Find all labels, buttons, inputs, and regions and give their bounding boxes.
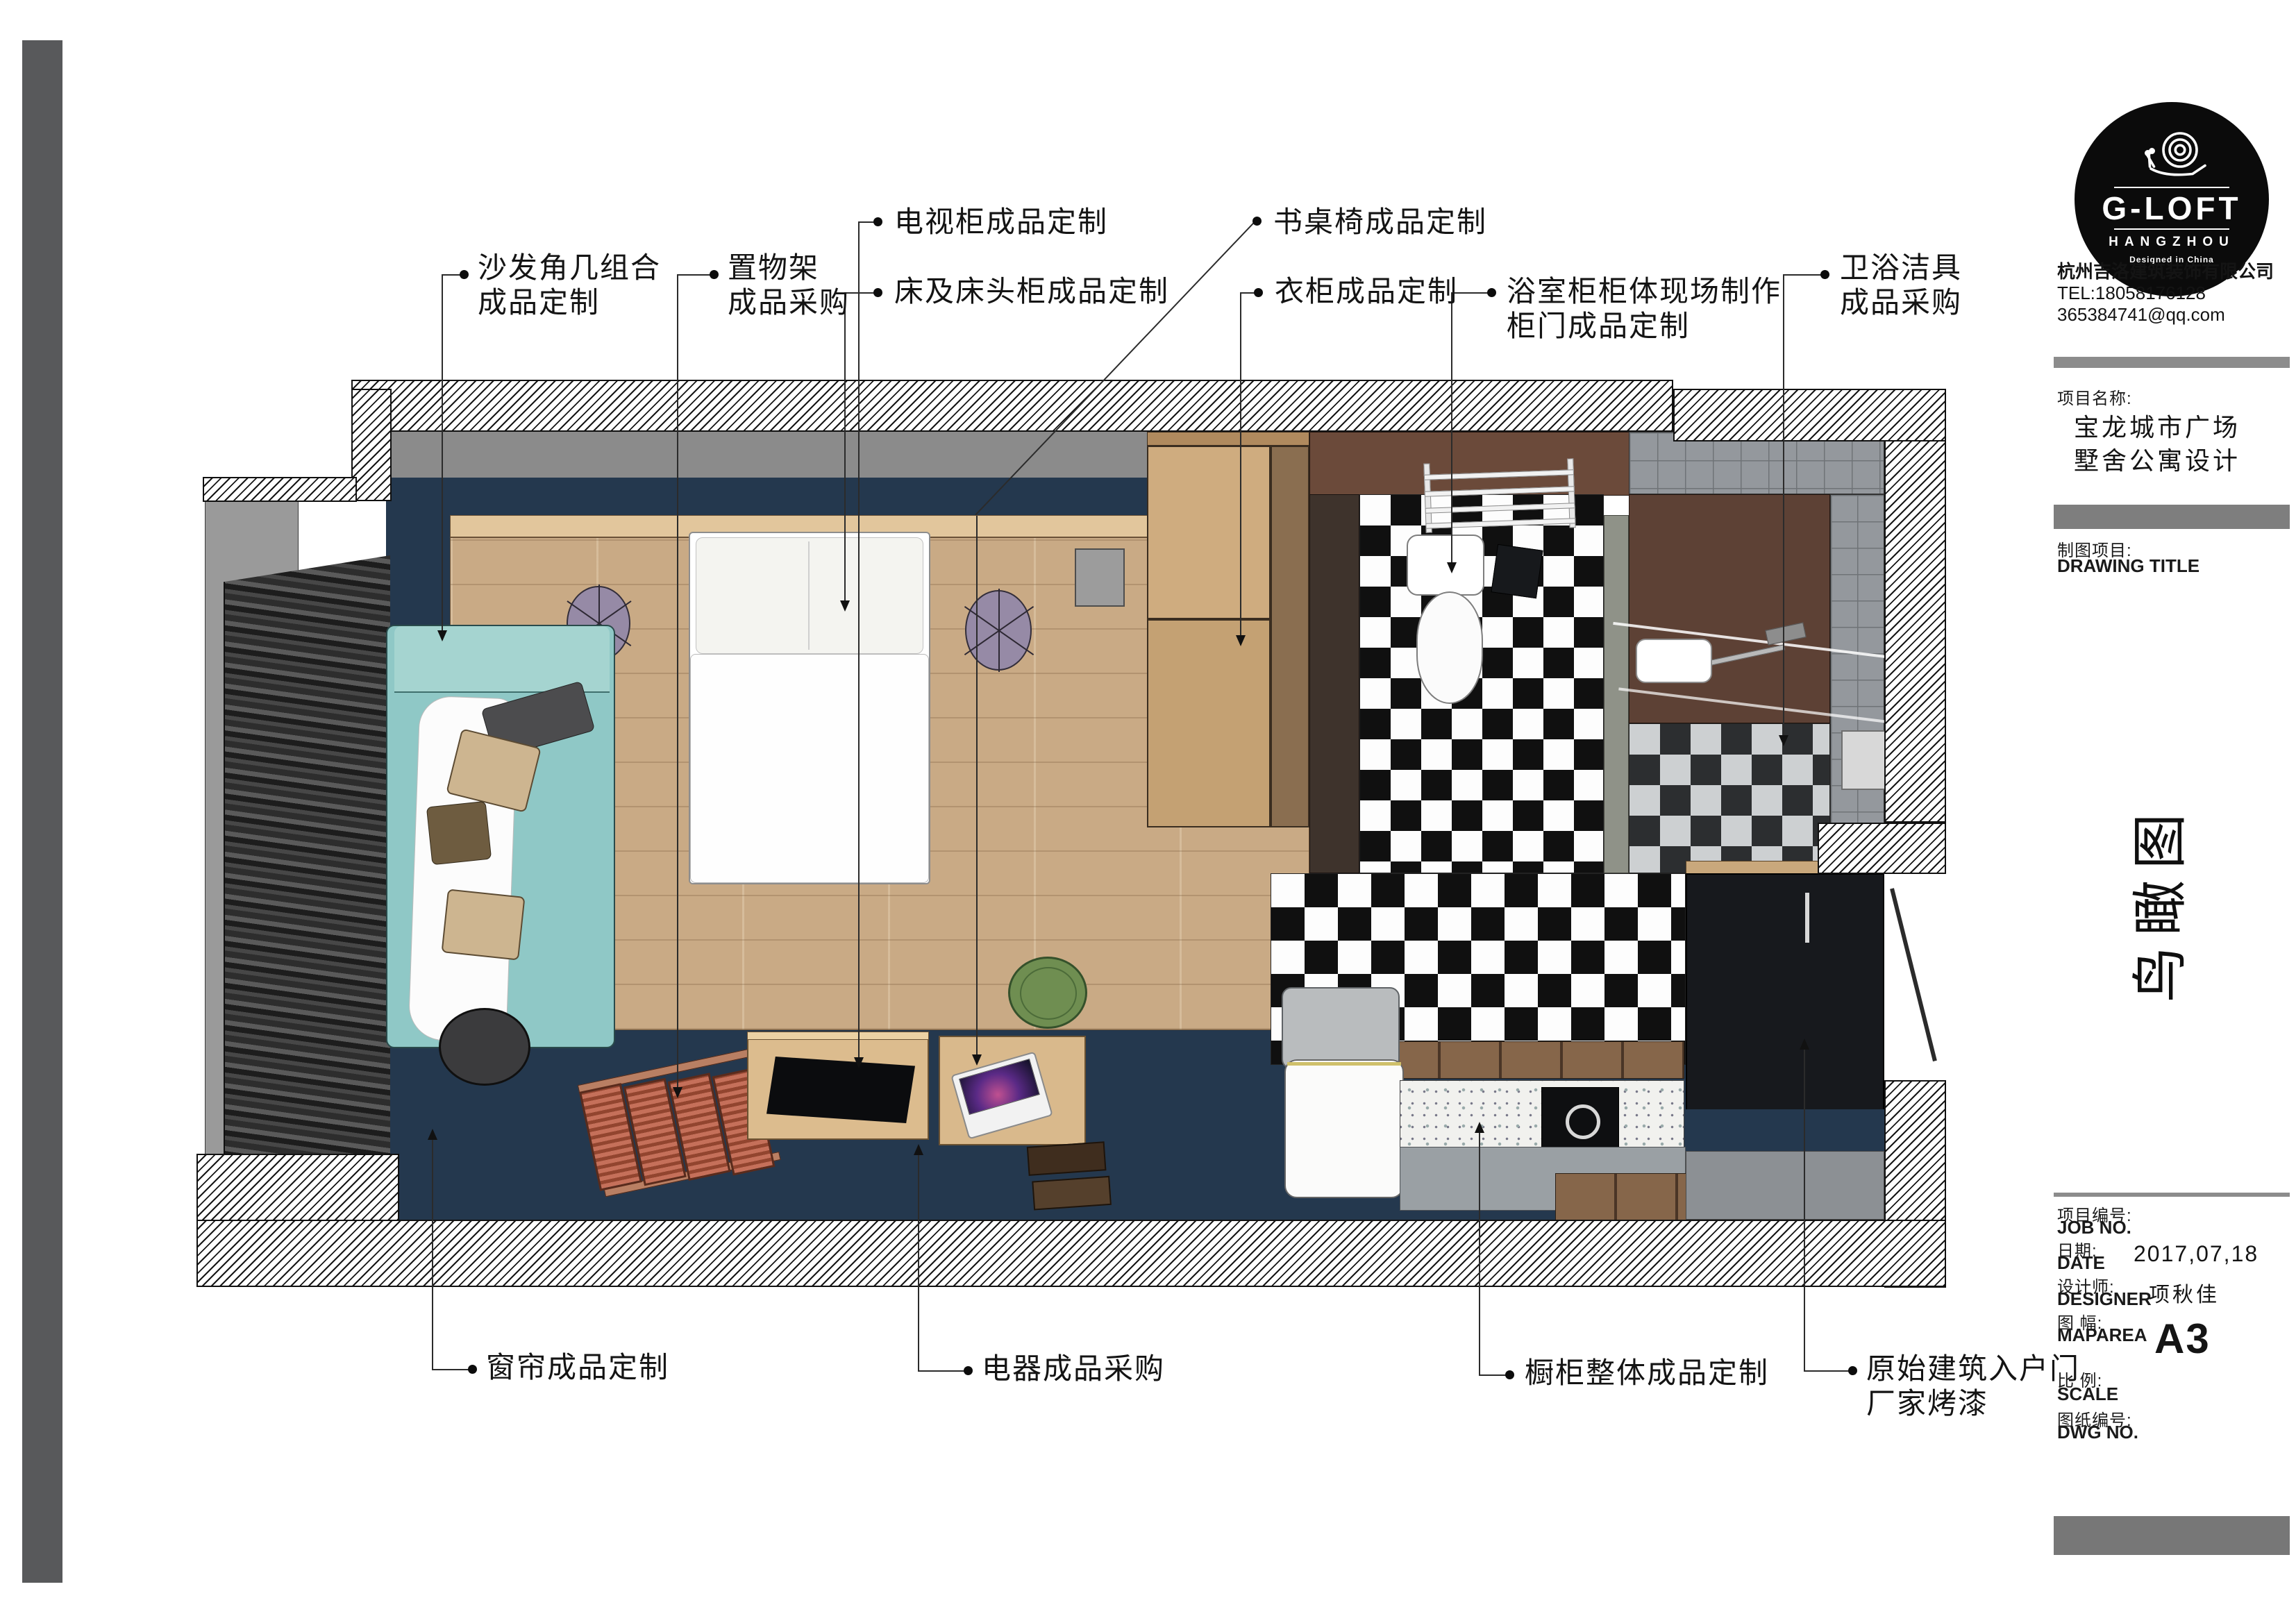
callout-text: 书桌椅成品定制	[1273, 205, 1487, 240]
bathroom-divider-wall	[1309, 494, 1359, 873]
leader-dot	[710, 270, 719, 279]
toilet-bowl	[1416, 591, 1483, 704]
speaker-box	[1075, 548, 1125, 607]
leader-dot	[1505, 1370, 1514, 1379]
field-label-en: JOB NO.	[2057, 1217, 2131, 1238]
drawing-title-sublabel: DRAWING TITLE	[2057, 555, 2199, 577]
divider-bar	[2054, 1193, 2290, 1197]
leader-line	[677, 274, 678, 1097]
leader-line	[1804, 1048, 1805, 1372]
project-name-line: 墅舍公寓设计	[2074, 444, 2240, 478]
field-label-en: DATE	[2057, 1252, 2105, 1274]
stove-burner	[1566, 1104, 1600, 1139]
field-value-date: 2017,07,18	[2134, 1241, 2259, 1267]
leader-arrow	[840, 600, 850, 612]
leader-dot	[1820, 270, 1829, 279]
wall-hatch-top-right	[1673, 389, 1946, 442]
leader-line	[1783, 274, 1825, 276]
field-value-designer: 项秋佳	[2149, 1277, 2220, 1308]
leader-line	[918, 1154, 919, 1370]
tv-cabinet-top-edge	[747, 1032, 929, 1040]
tissue-box	[1491, 544, 1543, 599]
sofa-pillow-tan-2	[441, 889, 525, 960]
callout-tv-cabinet: 电视柜成品定制	[894, 205, 1108, 240]
callout-text: 柜门成品定制	[1507, 310, 1782, 344]
leader-line	[432, 1138, 433, 1370]
tray	[1027, 1141, 1107, 1176]
callout-text: 成品定制	[478, 286, 661, 321]
tray	[1032, 1176, 1112, 1211]
bed-pillows	[696, 537, 923, 654]
bottom-bar	[2054, 1516, 2290, 1555]
drawing-title-text: 鸟瞰图	[2115, 802, 2196, 1002]
company-info: 杭州吉洛建筑装饰有限公司 TEL:18058176128 365384741@q…	[2057, 261, 2274, 326]
robot-vacuum	[439, 1008, 530, 1086]
leader-dot	[1254, 288, 1263, 297]
sofa-pillow-knit	[426, 801, 492, 866]
leaf-table-right	[965, 590, 1032, 671]
towel-rack-bar	[1425, 486, 1575, 497]
side-trays	[1027, 1141, 1109, 1213]
leader-dot	[873, 217, 882, 226]
leader-line	[1240, 292, 1241, 645]
field-value-maparea: A3	[2154, 1315, 2211, 1363]
leader-line	[918, 1370, 968, 1372]
curtain	[224, 555, 390, 1220]
stove	[1541, 1087, 1619, 1151]
leader-arrow	[428, 1129, 437, 1140]
bed-pillow-seam	[808, 541, 810, 650]
leader-line	[1783, 274, 1784, 745]
callout-curtain: 窗帘成品定制	[486, 1351, 669, 1386]
entry-black-cabinet	[1686, 873, 1884, 1112]
callout-bed: 床及床头柜成品定制	[894, 275, 1169, 310]
callout-text: 原始建筑入户门	[1866, 1352, 2080, 1387]
callout-text: 衣柜成品定制	[1275, 275, 1458, 310]
callout-shelf-rack: 置物架 成品采购	[728, 251, 850, 321]
washer-trim	[1287, 1062, 1401, 1066]
callout-sofa: 沙发角几组合 成品定制	[478, 251, 661, 321]
callout-appliances: 电器成品采购	[982, 1352, 1165, 1387]
leader-line	[1804, 1370, 1852, 1372]
wardrobe-upper	[1147, 446, 1271, 619]
leader-arrow	[972, 1054, 982, 1066]
callout-text: 电视柜成品定制	[894, 205, 1108, 240]
wall-hatch-bottom	[196, 1220, 1946, 1287]
green-pouf	[1008, 957, 1087, 1029]
callout-text: 置物架	[728, 251, 850, 286]
wall-hatch-bottom-step	[196, 1154, 399, 1221]
shower-wall-tiles-right	[1830, 494, 1884, 873]
callout-kitchen-cabinet: 橱柜整体成品定制	[1525, 1356, 1769, 1391]
leader-line	[976, 516, 978, 1064]
leader-line	[844, 292, 846, 610]
title-block: G-LOFT HANGZHOU Designed in China 杭州吉洛建筑…	[2052, 0, 2296, 1623]
cabinet-handle	[1805, 893, 1809, 943]
leader-arrow	[854, 1057, 864, 1068]
project-name: 宝龙城市广场 墅舍公寓设计	[2074, 411, 2240, 478]
callout-sanitaryware: 卫浴洁具 成品采购	[1840, 251, 1962, 321]
leader-dot	[1487, 288, 1496, 297]
logo-city: HANGZHOU	[2109, 235, 2235, 250]
kitchen-wood-strip-upper	[1379, 1041, 1684, 1079]
leader-arrow	[437, 630, 447, 641]
leader-arrow	[673, 1087, 682, 1098]
washer-lid	[1282, 987, 1400, 1069]
leader-arrow	[1779, 735, 1788, 746]
wall-hatch-left-stub	[203, 477, 357, 502]
vanity-sink	[1636, 639, 1712, 683]
callout-text: 浴室柜柜体现场制作	[1507, 275, 1782, 310]
field-label-en: MAPAREA	[2057, 1325, 2147, 1346]
towel-rack-bar	[1424, 469, 1574, 480]
pouf-seam	[1020, 967, 1077, 1020]
leader-dot	[964, 1366, 973, 1375]
callout-bath-cabinet: 浴室柜柜体现场制作 柜门成品定制	[1507, 275, 1782, 344]
wall-hatch-right-step	[1818, 823, 1946, 874]
company-tel: TEL:18058176128	[2057, 283, 2274, 304]
wall-hatch-top	[351, 380, 1673, 432]
bed-duvet	[690, 654, 929, 883]
toilet-tank	[1407, 535, 1484, 596]
shower-floor-checker	[1629, 723, 1830, 873]
leader-line	[1451, 292, 1452, 572]
company-email: 365384741@qq.com	[2057, 304, 2274, 326]
entry-floor-patch	[1686, 1151, 1884, 1220]
leader-line	[1479, 1132, 1480, 1376]
leader-dot	[873, 288, 882, 297]
entry-cabinet-skirt	[1686, 1109, 1884, 1151]
leader-arrow	[914, 1144, 923, 1155]
leader-arrow	[1447, 562, 1457, 573]
logo-rule	[2114, 228, 2229, 230]
tv-screen	[766, 1057, 915, 1123]
callout-text: 沙发角几组合	[478, 251, 661, 286]
towel-rack-bar	[1425, 518, 1575, 529]
towel-rack	[1423, 458, 1575, 532]
leader-line	[432, 1369, 472, 1370]
company-name: 杭州吉洛建筑装饰有限公司	[2057, 261, 2274, 283]
leader-line	[858, 221, 860, 1067]
callout-wardrobe: 衣柜成品定制	[1275, 275, 1458, 310]
callout-entry-door: 原始建筑入户门 厂家烤漆	[1866, 1352, 2080, 1422]
leader-arrow	[1800, 1038, 1809, 1050]
callout-text: 厂家烤漆	[1866, 1387, 2080, 1422]
leader-dot	[1848, 1366, 1857, 1375]
leader-arrow	[1475, 1122, 1484, 1133]
callout-text: 床及床头柜成品定制	[894, 275, 1169, 310]
callout-text: 成品采购	[1840, 286, 1962, 321]
bath-partition	[1604, 515, 1629, 873]
field-label-en: DWG NO.	[2057, 1422, 2138, 1443]
wall-hatch-topleft-vertical	[351, 389, 392, 501]
field-label-en: DESIGNER	[2057, 1288, 2152, 1310]
logo-rule	[2114, 187, 2229, 188]
callout-text: 卫浴洁具	[1840, 251, 1962, 286]
project-name-line: 宝龙城市广场	[2074, 411, 2240, 444]
wall-hatch-right-upper	[1884, 440, 1946, 823]
callout-text: 窗帘成品定制	[486, 1351, 669, 1386]
wardrobe-top-strip	[1147, 432, 1309, 446]
divider-bar	[2054, 505, 2290, 529]
callout-text: 电器成品采购	[982, 1352, 1165, 1387]
callout-text: 成品采购	[728, 286, 850, 321]
wardrobe-side-panel	[1271, 446, 1309, 827]
leader-dot	[1252, 217, 1262, 226]
divider-bar	[2054, 357, 2290, 368]
leader-dot	[468, 1365, 477, 1374]
leader-arrow	[1236, 635, 1246, 646]
project-name-label: 项目名称:	[2057, 385, 2132, 409]
leader-dot	[460, 270, 469, 279]
leader-line	[442, 274, 443, 640]
drawing-sheet: 沙发角几组合 成品定制 置物架 成品采购 电视柜成品定制 床及床头柜成品定制 书…	[0, 0, 2296, 1623]
washer-body	[1284, 1059, 1404, 1198]
towel-rack-bar	[1425, 503, 1575, 514]
callout-desk-chair: 书桌椅成品定制	[1273, 205, 1487, 240]
logo-brand: G-LOFT	[2102, 190, 2241, 227]
callout-text: 橱柜整体成品定制	[1525, 1356, 1769, 1391]
drawing-title-vertical: 鸟瞰图	[2114, 777, 2197, 1027]
shower-back-wall	[1629, 494, 1830, 723]
wardrobe-lower	[1147, 619, 1271, 827]
snail-icon	[2120, 120, 2224, 184]
